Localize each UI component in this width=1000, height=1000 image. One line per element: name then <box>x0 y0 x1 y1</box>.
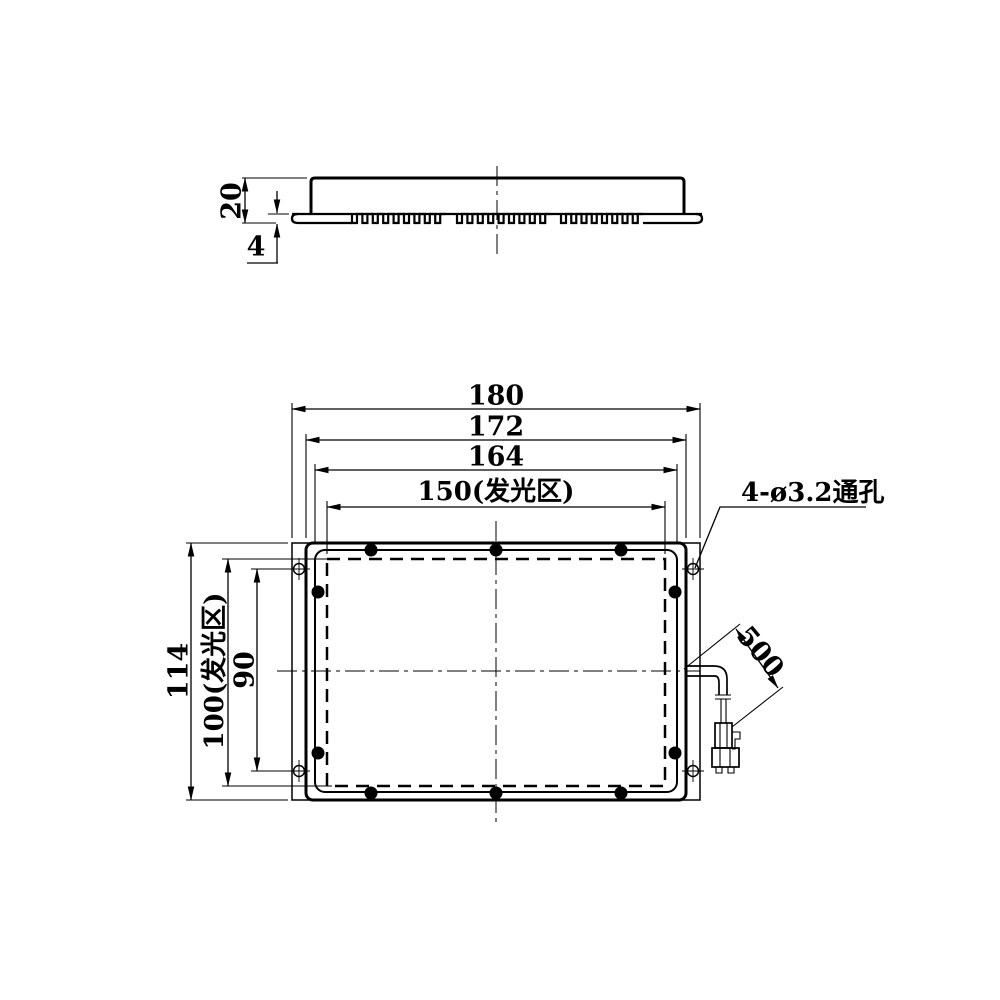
cable-wire <box>721 699 726 723</box>
connector-body <box>712 748 739 767</box>
side-view: 20 4 <box>217 166 703 263</box>
dim-label-4: 4 <box>247 232 266 263</box>
dim-label-150-glow: 150(发光区) <box>418 476 575 507</box>
dim-label-114: 114 <box>164 643 195 699</box>
screw <box>615 787 628 800</box>
heatsink-fins-group-3 <box>561 214 643 223</box>
hole-callout: 4-ø3.2通孔 <box>695 478 884 568</box>
cable-inner-line <box>686 676 719 695</box>
dim-label-500: 500 <box>730 620 790 683</box>
connector-neck-detail <box>720 723 727 748</box>
screw <box>615 544 628 557</box>
screw <box>669 747 682 760</box>
base-plate-left-end <box>292 214 352 223</box>
hole-note-label: 4-ø3.2通孔 <box>741 478 884 508</box>
dim-label-20: 20 <box>217 182 248 220</box>
heatsink-fins-group-1 <box>352 214 446 223</box>
connector-body-detail <box>720 748 730 767</box>
dimension-body-width: 172 <box>306 412 686 539</box>
connector-prongs <box>716 767 734 773</box>
ext-line <box>732 687 783 727</box>
dim-label-172: 172 <box>468 412 524 443</box>
drawing-canvas: 20 4 <box>0 0 1000 1000</box>
screw <box>490 544 503 557</box>
dim-label-100-glow: 100(发光区) <box>199 593 230 750</box>
base-plate-right-end <box>643 214 702 223</box>
technical-drawing: 20 4 <box>0 0 1000 1000</box>
screw <box>365 787 378 800</box>
dim-label-164: 164 <box>468 442 524 473</box>
dimension-hole-pitch: 90 <box>230 569 292 771</box>
connector-neck <box>715 723 732 748</box>
dim-label-180: 180 <box>468 381 524 412</box>
plan-view: 180 172 164 150(发光区) 114 <box>164 381 885 823</box>
screw <box>312 747 325 760</box>
heatsink-fins-group-2 <box>457 214 551 223</box>
screw <box>312 586 325 599</box>
cable-outer-line <box>686 666 727 695</box>
ext-line <box>684 624 740 669</box>
screw <box>365 544 378 557</box>
dimension-base-thickness: 4 <box>247 191 289 263</box>
cable-collar <box>715 695 731 699</box>
connector-latch <box>732 732 740 749</box>
screw <box>669 586 682 599</box>
screw <box>490 787 503 800</box>
leader-line <box>695 507 866 568</box>
dim-label-90: 90 <box>230 651 261 689</box>
cable-assembly <box>686 666 740 773</box>
